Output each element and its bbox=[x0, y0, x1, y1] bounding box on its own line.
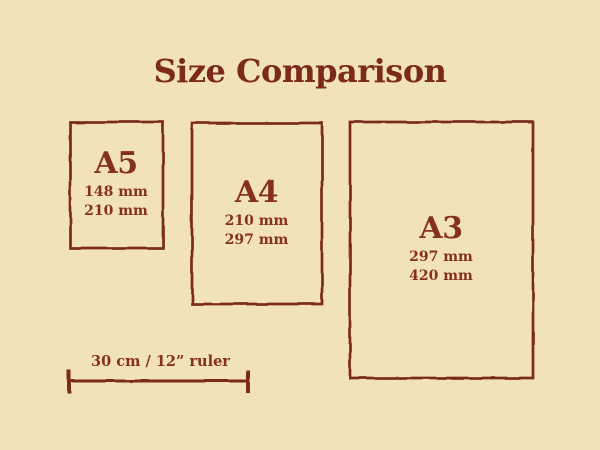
paper-a3-name: A3 bbox=[419, 213, 462, 245]
paper-a5-height-label: 210 mm bbox=[84, 202, 148, 221]
paper-a4-name: A4 bbox=[235, 177, 278, 209]
size-comparison-diagram: Size Comparison A5 148 mm 210 mm A4 210 … bbox=[0, 0, 600, 450]
paper-a5-name: A5 bbox=[94, 148, 137, 180]
paper-a4-width-label: 210 mm bbox=[225, 212, 289, 231]
paper-a4: A4 210 mm 297 mm bbox=[191, 122, 322, 304]
ruler-label: 30 cm / 12” ruler bbox=[58, 353, 263, 371]
page-title: Size Comparison bbox=[0, 52, 600, 90]
paper-a4-height-label: 297 mm bbox=[225, 231, 289, 250]
paper-a3-width-label: 297 mm bbox=[409, 248, 473, 267]
paper-a3: A3 297 mm 420 mm bbox=[349, 121, 533, 378]
paper-a5-width-label: 148 mm bbox=[84, 183, 148, 202]
paper-a5: A5 148 mm 210 mm bbox=[69, 121, 163, 248]
paper-a3-height-label: 420 mm bbox=[409, 267, 473, 286]
ruler-graphic bbox=[69, 372, 248, 391]
